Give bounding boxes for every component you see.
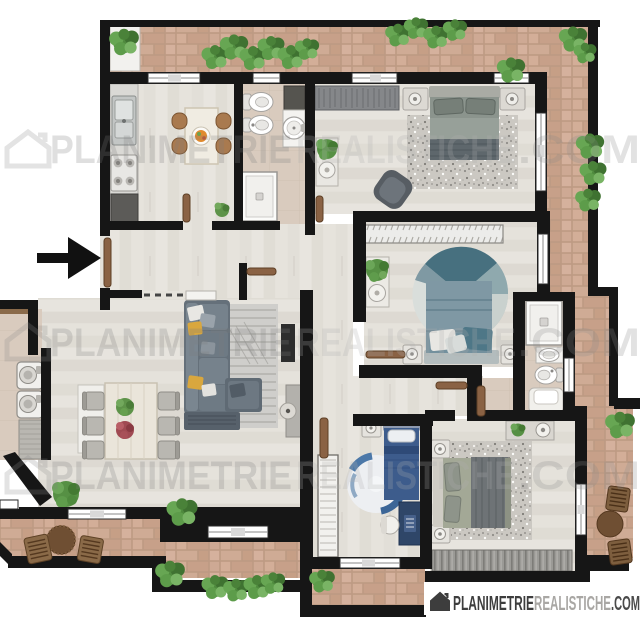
svg-text:.COM: .COM <box>611 593 640 615</box>
svg-text:REALISTICHE: REALISTICHE <box>534 593 611 615</box>
svg-text:PLANIMETRIE: PLANIMETRIE <box>453 593 534 615</box>
